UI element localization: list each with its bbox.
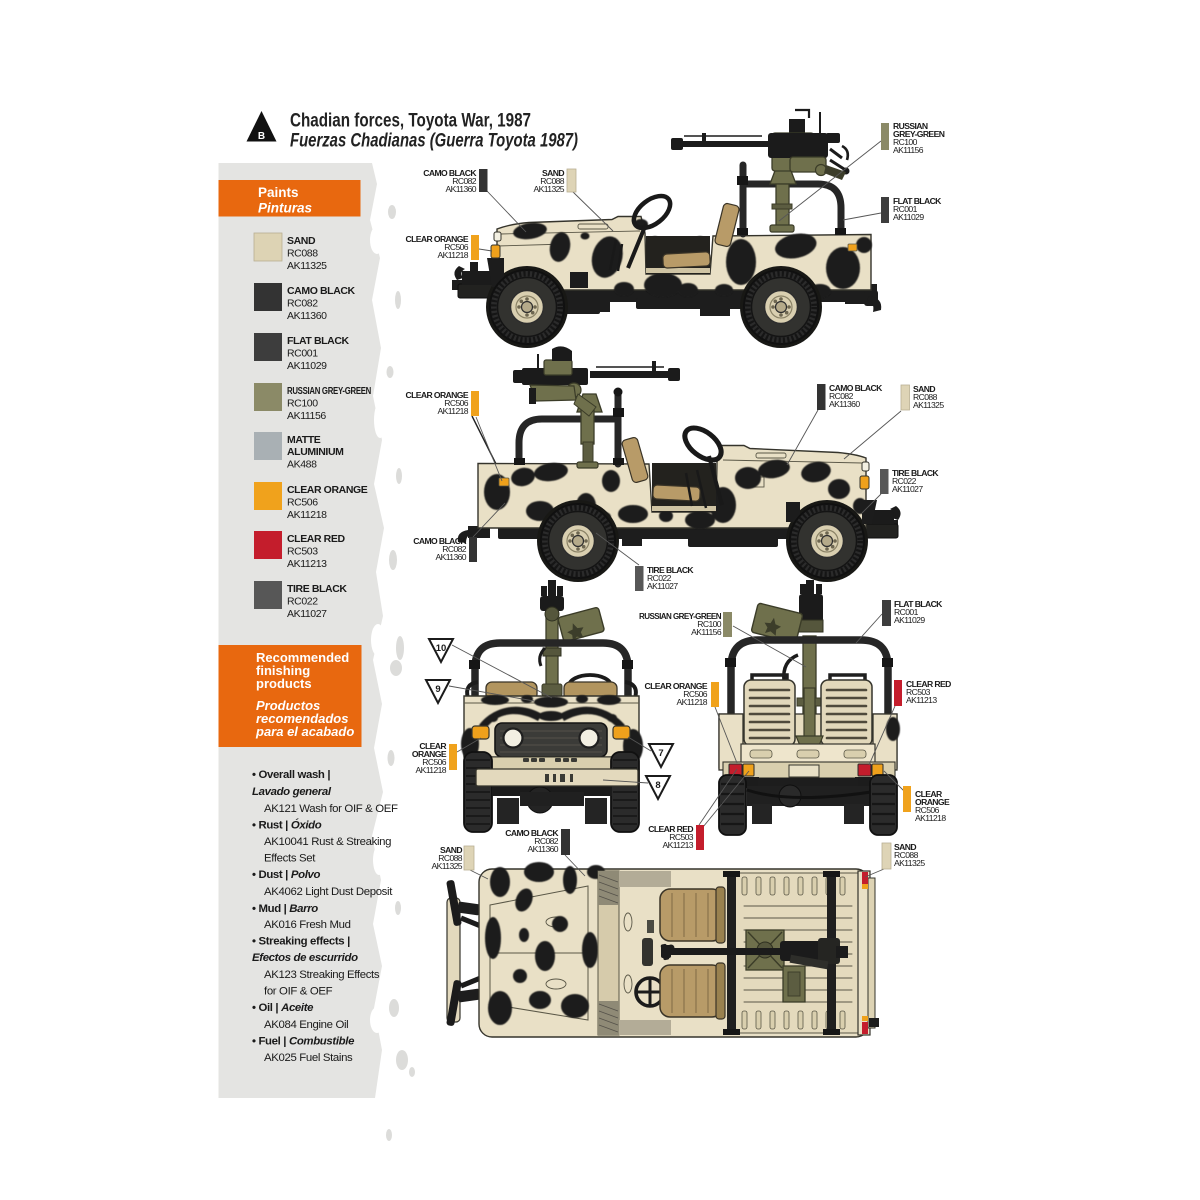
svg-text:AK11325: AK11325 <box>533 184 564 194</box>
svg-text:RC100: RC100 <box>287 398 318 410</box>
svg-text:TIRE BLACK: TIRE BLACK <box>287 583 347 595</box>
svg-text:AK11218: AK11218 <box>437 250 468 260</box>
svg-text:B: B <box>258 131 265 142</box>
svg-text:8: 8 <box>655 780 660 791</box>
svg-text:AK11218: AK11218 <box>287 509 327 521</box>
svg-text:RC082: RC082 <box>287 298 318 310</box>
svg-text:AK11029: AK11029 <box>287 360 327 372</box>
svg-text:• Mud | Barro: • Mud | Barro <box>252 903 318 915</box>
svg-text:CLEAR ORANGE: CLEAR ORANGE <box>287 484 368 496</box>
svg-text:AK123 Streaking Effects: AK123 Streaking Effects <box>264 969 380 981</box>
svg-text:CLEAR RED: CLEAR RED <box>287 533 345 545</box>
svg-text:AK11029: AK11029 <box>894 615 925 625</box>
svg-text:RC022: RC022 <box>287 596 318 608</box>
svg-text:ALUMINIUM: ALUMINIUM <box>287 446 344 458</box>
svg-text:AK11156: AK11156 <box>287 410 326 422</box>
svg-text:• Dust | Polvo: • Dust | Polvo <box>252 869 320 881</box>
svg-text:• Overall wash |: • Overall wash | <box>252 769 330 781</box>
svg-text:FLAT BLACK: FLAT BLACK <box>287 335 350 347</box>
svg-text:10: 10 <box>436 643 447 654</box>
svg-text:for OIF & OEF: for OIF & OEF <box>264 986 333 998</box>
svg-text:AK11360: AK11360 <box>829 399 860 409</box>
svg-text:AK11325: AK11325 <box>431 861 462 871</box>
svg-text:AK10041 Rust & Streaking: AK10041 Rust & Streaking <box>264 836 391 848</box>
svg-text:AK016 Fresh Mud: AK016 Fresh Mud <box>264 919 351 931</box>
svg-text:AK11325: AK11325 <box>287 260 327 272</box>
svg-text:AK11027: AK11027 <box>647 581 678 591</box>
svg-text:AK11156: AK11156 <box>893 145 924 155</box>
svg-text:AK4062 Light Dust Deposit: AK4062 Light Dust Deposit <box>264 886 393 898</box>
svg-text:Lavado general: Lavado general <box>252 786 332 798</box>
svg-text:AK488: AK488 <box>287 459 317 471</box>
svg-text:AK11360: AK11360 <box>445 184 476 194</box>
svg-text:AK084 Engine Oil: AK084 Engine Oil <box>264 1019 348 1031</box>
svg-text:9: 9 <box>435 684 440 695</box>
svg-text:CAMO BLACK: CAMO BLACK <box>287 285 356 297</box>
svg-text:AK11325: AK11325 <box>894 858 925 868</box>
svg-text:AK11213: AK11213 <box>662 840 693 850</box>
svg-text:RC088: RC088 <box>287 248 318 260</box>
svg-text:AK11156: AK11156 <box>691 627 722 637</box>
svg-text:AK11218: AK11218 <box>415 765 446 775</box>
svg-text:para el acabado: para el acabado <box>255 724 354 739</box>
svg-text:RC503: RC503 <box>287 546 318 558</box>
svg-text:AK025 Fuel Stains: AK025 Fuel Stains <box>264 1052 353 1064</box>
svg-text:AK11218: AK11218 <box>437 406 468 416</box>
svg-text:AK11360: AK11360 <box>435 552 466 562</box>
svg-text:• Streaking effects |: • Streaking effects | <box>252 936 350 948</box>
svg-text:SAND: SAND <box>287 235 316 247</box>
svg-text:Efectos de escurrido: Efectos de escurrido <box>252 952 358 964</box>
svg-text:Chadian forces, Toyota War, 19: Chadian forces, Toyota War, 1987 <box>290 111 531 132</box>
svg-text:• Fuel | Combustible: • Fuel | Combustible <box>252 1036 355 1048</box>
svg-text:Fuerzas Chadianas (Guerra Toyo: Fuerzas Chadianas (Guerra Toyota 1987) <box>290 131 578 152</box>
svg-text:AK11027: AK11027 <box>287 608 327 620</box>
svg-text:AK11325: AK11325 <box>913 400 944 410</box>
svg-text:AK11213: AK11213 <box>287 558 327 570</box>
svg-text:AK11360: AK11360 <box>527 844 558 854</box>
svg-text:AK121 Wash for OIF & OEF: AK121 Wash for OIF & OEF <box>264 803 398 815</box>
svg-text:• Oil | Aceite: • Oil | Aceite <box>252 1002 314 1014</box>
svg-text:Effects Set: Effects Set <box>264 853 316 865</box>
svg-text:Paints: Paints <box>258 185 299 200</box>
svg-text:AK11218: AK11218 <box>676 697 707 707</box>
svg-text:RC001: RC001 <box>287 348 318 360</box>
svg-text:AK11027: AK11027 <box>892 484 923 494</box>
svg-text:products: products <box>256 676 312 691</box>
svg-text:AK11029: AK11029 <box>893 212 924 222</box>
svg-text:RUSSIAN GREY-GREEN: RUSSIAN GREY-GREEN <box>287 385 371 397</box>
svg-text:AK11360: AK11360 <box>287 310 327 322</box>
svg-text:• Rust | Óxido: • Rust | Óxido <box>252 819 322 832</box>
svg-text:AK11218: AK11218 <box>915 813 946 823</box>
svg-text:Pinturas: Pinturas <box>258 201 313 216</box>
svg-text:MATTE: MATTE <box>287 434 321 446</box>
svg-text:AK11213: AK11213 <box>906 695 937 705</box>
svg-text:RC506: RC506 <box>287 497 318 509</box>
svg-text:7: 7 <box>658 748 663 759</box>
